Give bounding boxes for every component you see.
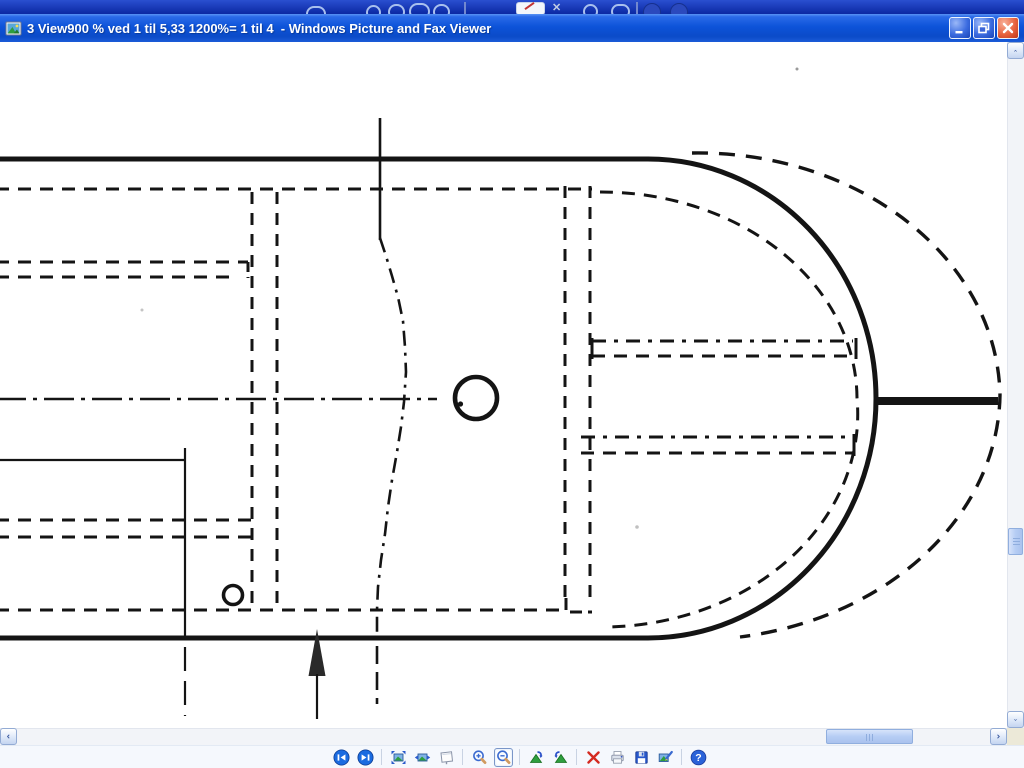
- background-toolbar-fragment: [583, 4, 598, 14]
- previous-image-button[interactable]: [332, 748, 351, 767]
- next-image-icon: [357, 749, 374, 766]
- minimize-icon: [952, 20, 968, 36]
- horizontal-scrollbar-thumb[interactable]: [826, 729, 913, 744]
- background-toolbar-fragment: [611, 4, 630, 14]
- restore-button[interactable]: [973, 17, 995, 39]
- scroll-left-button[interactable]: [0, 728, 17, 745]
- print-icon: [609, 749, 626, 766]
- minimize-button[interactable]: [949, 17, 971, 39]
- best-fit-button[interactable]: [389, 748, 408, 767]
- chevron-left-icon: [7, 732, 10, 741]
- next-image-button[interactable]: [356, 748, 375, 767]
- close-button[interactable]: [997, 17, 1019, 39]
- background-toolbar-fragment: ✕: [552, 3, 561, 13]
- background-toolbar-fragment: [670, 3, 688, 14]
- rotate-clockwise-icon: [528, 749, 545, 766]
- vertical-scrollbar[interactable]: [1007, 42, 1024, 728]
- background-toolbar-fragment: [306, 6, 326, 14]
- zoom-in-icon: [471, 749, 488, 766]
- edit-button[interactable]: [656, 748, 675, 767]
- scrollbar-corner: [1007, 728, 1024, 745]
- rotate-counterclockwise-icon: [552, 749, 569, 766]
- print-button[interactable]: [608, 748, 627, 767]
- close-icon: [1000, 20, 1016, 36]
- start-slideshow-button[interactable]: [437, 748, 456, 767]
- chevron-up-icon: [1014, 48, 1017, 54]
- chevron-down-icon: [1014, 717, 1017, 723]
- toolbar-separator: [462, 749, 463, 765]
- image-canvas[interactable]: [0, 42, 1007, 728]
- delete-icon: [585, 749, 602, 766]
- best-fit-icon: [390, 749, 407, 766]
- zoom-in-button[interactable]: [470, 748, 489, 767]
- viewer-toolbar: ?: [0, 745, 1024, 768]
- scroll-right-button[interactable]: [990, 728, 1007, 745]
- scroll-down-button[interactable]: [1007, 711, 1024, 728]
- background-toolbar-separator: [636, 2, 638, 14]
- scroll-up-button[interactable]: [1007, 42, 1024, 59]
- background-window-strip: ✕: [0, 0, 1024, 14]
- zoom-out-icon: [495, 749, 512, 766]
- actual-size-button[interactable]: [413, 748, 432, 767]
- previous-image-icon: [333, 749, 350, 766]
- background-toolbar-separator: [464, 2, 466, 14]
- background-toolbar-fragment: [366, 5, 381, 14]
- title-bar: 3 View900 % ved 1 til 5,33 1200%= 1 til …: [0, 14, 1024, 42]
- background-toolbar-fragment: [433, 4, 450, 14]
- save-icon: [633, 749, 650, 766]
- rotate-counterclockwise-button[interactable]: [551, 748, 570, 767]
- delete-button[interactable]: [584, 748, 603, 767]
- save-button[interactable]: [632, 748, 651, 767]
- help-icon: ?: [690, 749, 707, 766]
- toolbar-separator: [381, 749, 382, 765]
- vertical-scrollbar-thumb[interactable]: [1008, 528, 1023, 555]
- svg-text:?: ?: [695, 752, 701, 764]
- background-toolbar-fragment: [516, 2, 545, 14]
- background-toolbar-fragment: [409, 3, 430, 14]
- chevron-right-icon: [997, 732, 1000, 741]
- background-toolbar-fragment: [643, 3, 661, 14]
- edit-icon: [657, 749, 674, 766]
- technical-drawing: [0, 42, 1007, 728]
- window-title: 3 View900 % ved 1 til 5,33 1200%= 1 til …: [27, 21, 491, 36]
- restore-icon: [976, 20, 992, 36]
- slideshow-icon: [438, 749, 455, 766]
- actual-size-icon: [414, 749, 431, 766]
- rotate-clockwise-button[interactable]: [527, 748, 546, 767]
- zoom-out-button[interactable]: [494, 748, 513, 767]
- help-button[interactable]: ?: [689, 748, 708, 767]
- background-toolbar-fragment: [388, 4, 405, 14]
- horizontal-scrollbar[interactable]: [0, 728, 1007, 745]
- app-icon: [5, 20, 22, 37]
- toolbar-separator: [576, 749, 577, 765]
- toolbar-separator: [681, 749, 682, 765]
- toolbar-separator: [519, 749, 520, 765]
